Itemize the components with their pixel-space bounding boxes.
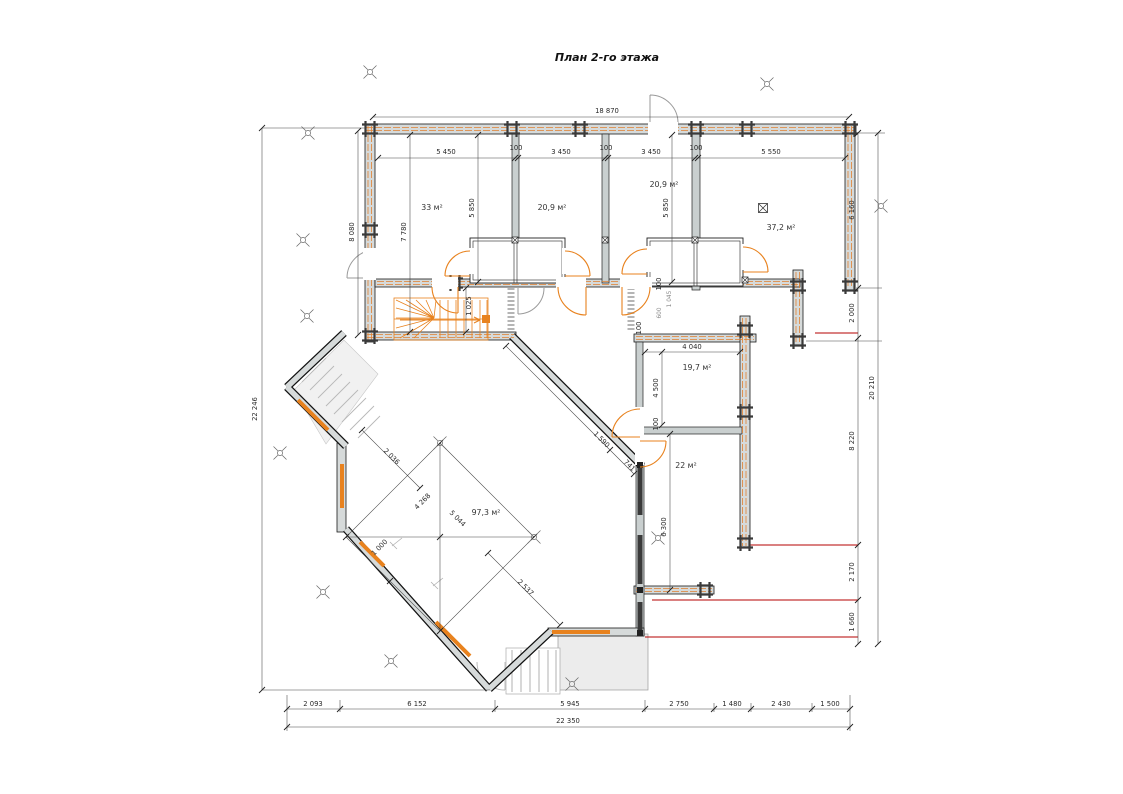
- stair-direction-marker: [482, 315, 490, 323]
- dimension-label: 1 500: [820, 700, 839, 708]
- dimension-label: 100: [635, 322, 643, 335]
- junction-marker-icon: [602, 237, 608, 243]
- dimension-label: 1 000: [370, 538, 389, 557]
- dimension-label: 100: [655, 278, 663, 291]
- axis-marker-icon: [385, 655, 398, 668]
- door-corridor-1: [558, 287, 586, 315]
- door-openings: [363, 122, 748, 465]
- dimension-label: 2 000: [848, 303, 856, 322]
- wall-stair-south: [365, 332, 516, 340]
- partition-2: [602, 134, 609, 283]
- axis-marker-icon: [297, 234, 310, 247]
- dimension-label: 2 750: [669, 700, 688, 708]
- dimension-label: 18 870: [595, 107, 619, 115]
- room-area-label: 33 м²: [421, 203, 442, 212]
- dimension-label: 2 093: [303, 700, 322, 708]
- glazed-wall: [637, 462, 643, 636]
- note-label: 1 045: [667, 290, 673, 307]
- dimension-label: 4 500: [652, 378, 660, 397]
- window-sw-diagonal: [360, 542, 470, 656]
- room-area-label: 97,3 м²: [472, 508, 501, 517]
- axis-marker-icon: [302, 127, 315, 140]
- dimension-label: 6 160: [848, 200, 856, 219]
- axis-marker-icon: [875, 200, 888, 213]
- dimension-label: 4 040: [682, 343, 701, 351]
- log-tie-marks: [362, 121, 858, 598]
- bathroom-block-a: [470, 238, 565, 283]
- dimension-label: 2 036: [382, 447, 401, 466]
- junction-marker-icon: [759, 204, 768, 213]
- dimension-label: 6 300: [660, 517, 668, 536]
- door-bath-b-left: [622, 249, 647, 274]
- dimension-label: 2 537: [516, 578, 535, 597]
- wall-top: [365, 124, 856, 134]
- dimension-label: 1 025: [465, 296, 473, 315]
- junction-marker-icon: [692, 237, 698, 243]
- door-corridor-2: [622, 287, 650, 315]
- dimension-label: 3 450: [641, 148, 660, 156]
- dimension-label: 2 170: [848, 562, 856, 581]
- axis-marker-icon: [761, 78, 774, 91]
- axis-marker-icon: [274, 447, 287, 460]
- dimension-label: 5 850: [662, 198, 670, 217]
- dimension-label: 5 550: [761, 148, 780, 156]
- dimension-label: 5 945: [560, 700, 579, 708]
- door-bath-a-left: [445, 251, 470, 276]
- walls-layer: [287, 121, 858, 689]
- axis-marker-icon: [317, 586, 330, 599]
- room-area-label: 20,9 м²: [538, 203, 567, 212]
- drawing-title: План 2-го этажа: [555, 51, 659, 64]
- wall-room-south: [634, 586, 714, 594]
- dimension-label: 20 210: [868, 376, 876, 400]
- exterior-stairs-nw: [294, 340, 380, 444]
- junction-marker-icon: [742, 277, 748, 283]
- dimension-label: 100: [510, 144, 523, 152]
- axis-marker-icon: [364, 66, 377, 79]
- room-area-label: 37,2 м²: [767, 223, 796, 232]
- drawing-sheet: 33 м²20,9 м²20,9 м²37,2 м²19,7 м²22 м²97…: [0, 0, 1123, 794]
- gray-underlay-layer: [294, 95, 678, 694]
- dimension-label: 22 350: [556, 717, 580, 725]
- note-label: 600: [657, 307, 663, 318]
- dimension-label: 6 152: [407, 700, 426, 708]
- junction-marker-icon: [512, 237, 518, 243]
- room-area-label: 19,7 м²: [683, 363, 712, 372]
- room-area-label: 22 м²: [675, 461, 696, 470]
- dimension-label: 7 780: [400, 222, 408, 241]
- dimension-label: 5 044: [448, 509, 467, 528]
- dimension-label: 100: [690, 144, 703, 152]
- dimension-label: 1 660: [848, 612, 856, 631]
- dimension-label: 5 850: [468, 198, 476, 217]
- dimension-label: 4 268: [413, 492, 432, 511]
- dimension-label: 1 480: [722, 700, 741, 708]
- dimension-label: 2 430: [771, 700, 790, 708]
- dimension-label: 8 080: [348, 222, 356, 241]
- dimension-label: 100: [600, 144, 613, 152]
- floor-plan-canvas: 33 м²20,9 м²20,9 м²37,2 м²19,7 м²22 м²97…: [0, 0, 1123, 794]
- dimension-label: 8 220: [848, 431, 856, 450]
- dimension-label: 3 450: [551, 148, 570, 156]
- room-area-label: 20,9 м²: [650, 180, 679, 189]
- dimension-label: 22 246: [251, 397, 259, 421]
- axis-marker-icon: [301, 310, 314, 323]
- dimension-label: 100: [652, 418, 660, 431]
- dimension-label: 5 450: [436, 148, 455, 156]
